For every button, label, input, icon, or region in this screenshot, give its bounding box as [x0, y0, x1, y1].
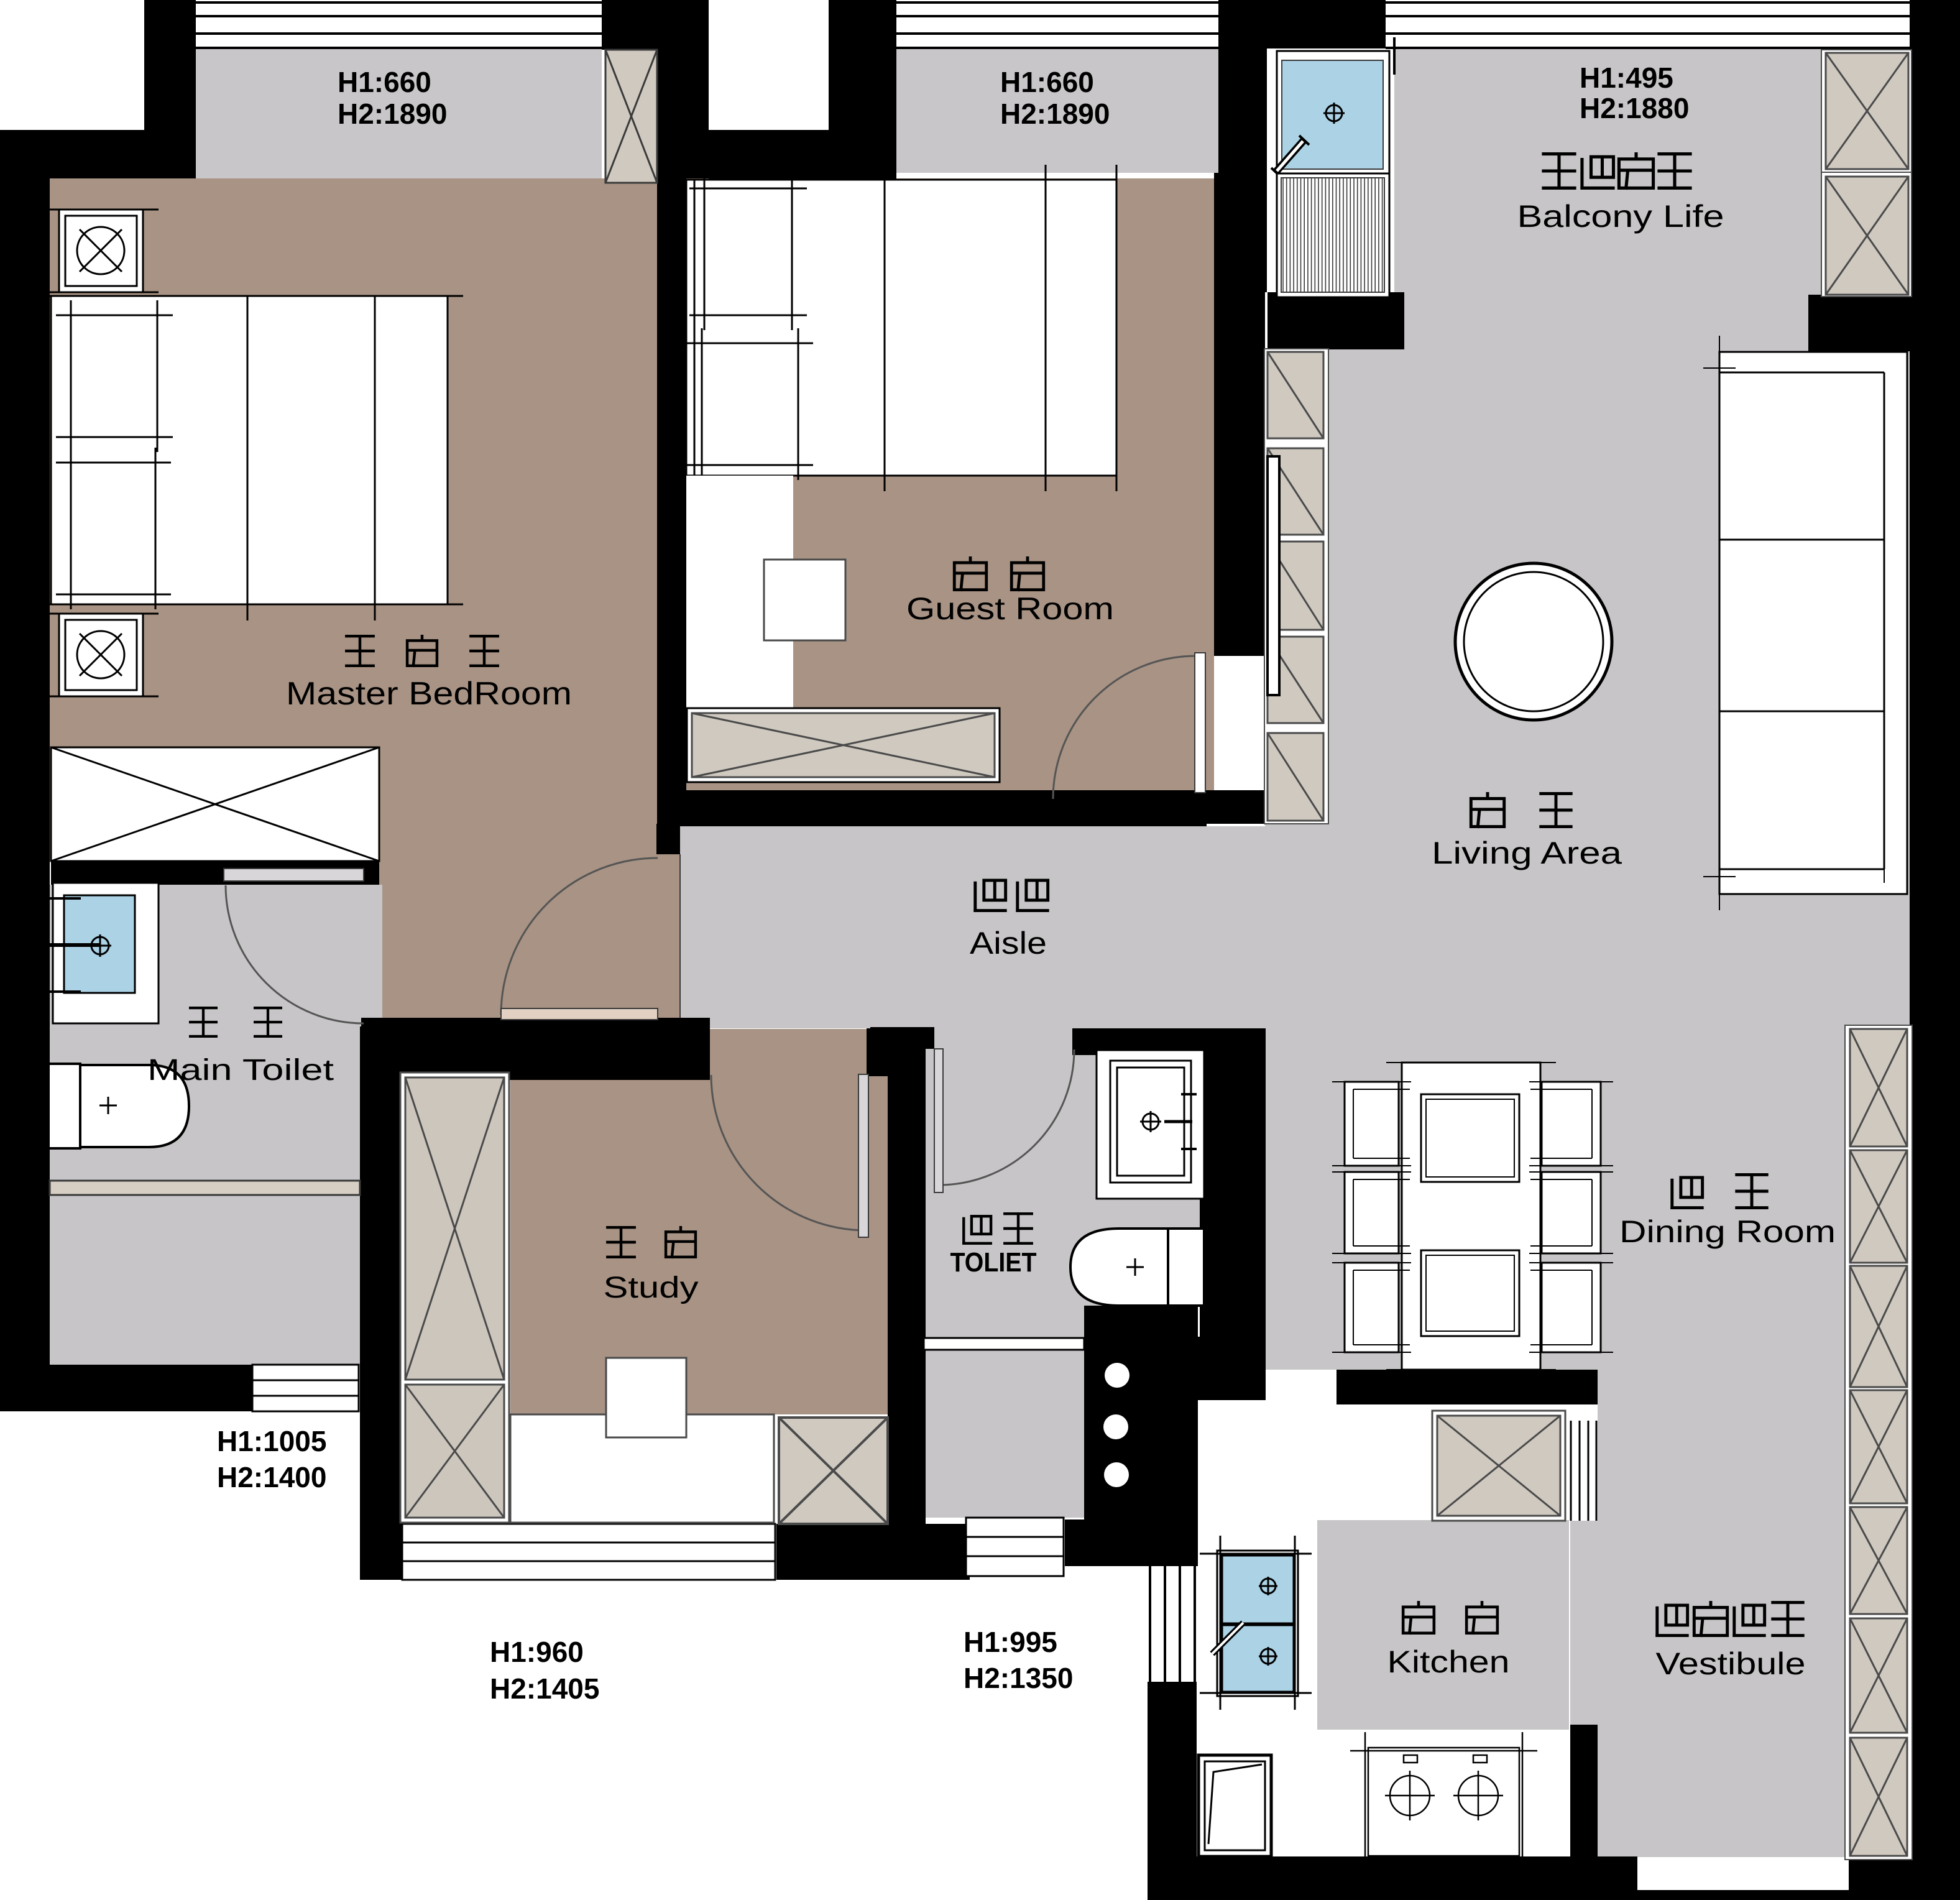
svg-text:H1:995: H1:995 — [964, 1626, 1057, 1658]
svg-text:H1:960: H1:960 — [490, 1636, 584, 1668]
svg-text:Balcony Life: Balcony Life — [1517, 199, 1724, 234]
svg-text:H2:1890: H2:1890 — [1000, 98, 1110, 130]
svg-text:H2:1890: H2:1890 — [338, 98, 447, 130]
svg-text:Guest Room: Guest Room — [906, 591, 1114, 626]
svg-text:H2:1400: H2:1400 — [217, 1461, 326, 1493]
svg-text:Vestibule: Vestibule — [1656, 1646, 1806, 1681]
svg-text:H2:1880: H2:1880 — [1580, 92, 1689, 124]
svg-text:Main Toilet: Main Toilet — [147, 1054, 334, 1087]
svg-text:H1:660: H1:660 — [1000, 66, 1094, 98]
svg-text:Kitchen: Kitchen — [1387, 1644, 1510, 1679]
svg-text:Dining Room: Dining Room — [1619, 1214, 1836, 1249]
svg-text:H2:1350: H2:1350 — [964, 1662, 1073, 1694]
svg-text:H1:660: H1:660 — [338, 66, 431, 98]
svg-text:Aisle: Aisle — [970, 926, 1047, 961]
svg-text:Living Area: Living Area — [1432, 836, 1622, 870]
svg-text:H1:1005: H1:1005 — [217, 1425, 326, 1457]
svg-text:H1:495: H1:495 — [1580, 62, 1673, 94]
svg-text:TOLIET: TOLIET — [950, 1247, 1037, 1278]
svg-text:H2:1405: H2:1405 — [490, 1672, 599, 1705]
svg-text:Master BedRoom: Master BedRoom — [286, 676, 572, 712]
svg-text:Study: Study — [604, 1271, 699, 1304]
